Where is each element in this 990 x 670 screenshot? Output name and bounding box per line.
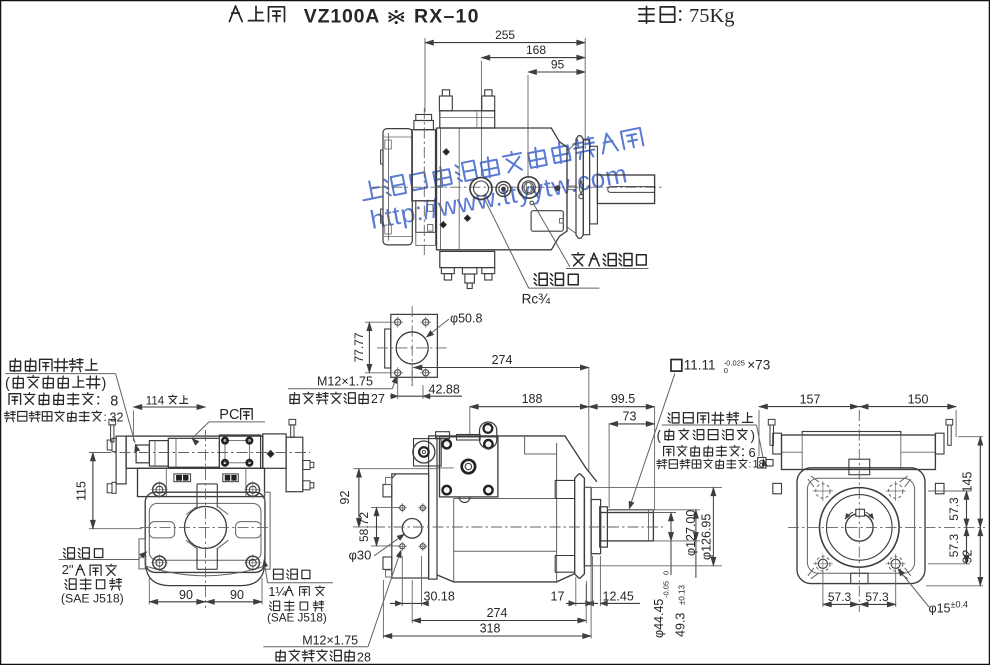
svg-text:42.88: 42.88 <box>429 383 460 397</box>
svg-text:58.72: 58.72 <box>357 512 371 542</box>
svg-text:RX–10: RX–10 <box>414 5 480 27</box>
svg-text:±0.13: ±0.13 <box>678 584 687 605</box>
svg-text:114: 114 <box>146 395 165 407</box>
svg-text:255: 255 <box>495 28 515 42</box>
svg-text:M12×1.75: M12×1.75 <box>317 375 373 389</box>
svg-text:90: 90 <box>230 588 244 602</box>
svg-text:φ44.45: φ44.45 <box>652 599 666 638</box>
svg-text:32: 32 <box>110 411 124 425</box>
svg-text:0: 0 <box>662 571 671 575</box>
svg-text:30.18: 30.18 <box>424 590 455 604</box>
svg-text:57.3: 57.3 <box>865 590 889 604</box>
svg-text:M12×1.75: M12×1.75 <box>302 634 358 648</box>
svg-text:27: 27 <box>371 392 385 406</box>
svg-text:φ127.00: φ127.00 <box>684 510 698 556</box>
svg-text:49.3: 49.3 <box>674 613 688 637</box>
svg-text:×73: ×73 <box>747 358 770 373</box>
svg-text:99.5: 99.5 <box>611 392 635 406</box>
svg-text:φ15: φ15 <box>929 602 951 616</box>
svg-text:92: 92 <box>338 491 352 505</box>
svg-text:28: 28 <box>357 651 371 665</box>
svg-text:168: 168 <box>526 43 546 57</box>
svg-text:18: 18 <box>753 459 765 471</box>
svg-text::: : <box>749 458 752 470</box>
svg-text:95: 95 <box>551 58 565 72</box>
svg-text:73: 73 <box>623 409 637 423</box>
svg-text:PC: PC <box>219 407 239 423</box>
svg-text:145: 145 <box>961 472 975 493</box>
svg-text:2": 2" <box>62 562 74 577</box>
svg-text:90: 90 <box>179 588 193 602</box>
svg-text:¾: ¾ <box>538 291 551 307</box>
svg-text:(SAE J518): (SAE J518) <box>61 592 124 606</box>
svg-text:±0.4: ±0.4 <box>951 600 968 610</box>
svg-text:8: 8 <box>110 394 118 410</box>
svg-text:): ) <box>102 376 107 392</box>
svg-text:75Kg: 75Kg <box>689 5 735 27</box>
svg-text:(: ( <box>5 376 10 392</box>
svg-text::: : <box>104 410 107 424</box>
svg-text:57.3: 57.3 <box>947 533 961 557</box>
svg-text:274: 274 <box>492 353 513 367</box>
svg-text:57.3: 57.3 <box>828 590 852 604</box>
svg-text:115: 115 <box>75 481 89 501</box>
svg-text:17: 17 <box>551 590 565 604</box>
svg-text:φ50.8: φ50.8 <box>450 312 482 326</box>
svg-text:0: 0 <box>724 366 728 375</box>
svg-text:318: 318 <box>480 622 501 636</box>
svg-text:Rc: Rc <box>522 291 539 306</box>
svg-text:1¼: 1¼ <box>268 584 286 599</box>
svg-text:77.77: 77.77 <box>352 332 366 362</box>
svg-text:12.45: 12.45 <box>603 590 634 604</box>
svg-text:(SAE J518): (SAE J518) <box>267 612 327 625</box>
svg-text:): ) <box>751 428 756 443</box>
svg-text:92: 92 <box>961 550 975 564</box>
svg-text:274: 274 <box>487 606 508 620</box>
svg-text:-0.05: -0.05 <box>662 581 671 598</box>
svg-text:57.3: 57.3 <box>947 497 961 521</box>
svg-text:φ126.95: φ126.95 <box>700 514 714 560</box>
svg-text:188: 188 <box>522 392 543 406</box>
svg-text:(: ( <box>657 428 662 443</box>
svg-text:φ30: φ30 <box>349 548 372 563</box>
svg-text:11.11: 11.11 <box>684 358 716 373</box>
svg-text:：: ： <box>95 393 108 408</box>
svg-text:157: 157 <box>800 392 821 406</box>
svg-text:VZ100A: VZ100A <box>304 5 380 27</box>
svg-text:150: 150 <box>908 392 929 406</box>
